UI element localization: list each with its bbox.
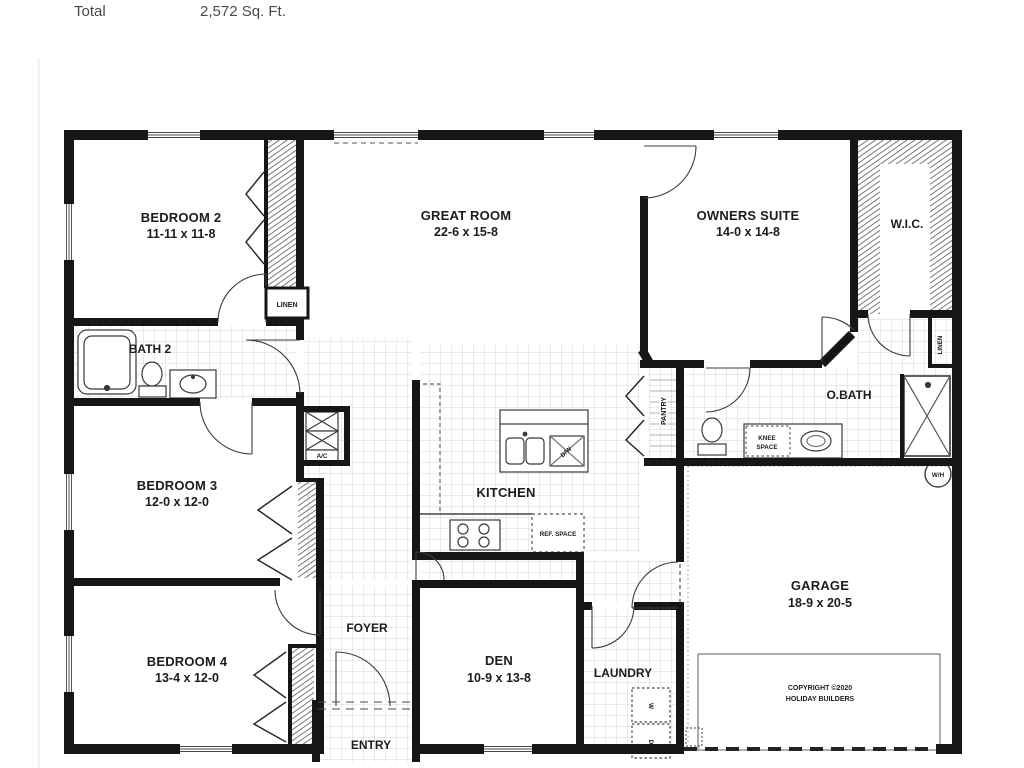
bedroom3-closet-hatch	[298, 482, 316, 578]
room-dims-owners-suite: 14-0 x 14-8	[716, 225, 780, 239]
bathtub	[78, 330, 136, 394]
bifold-bedroom3-closet	[258, 486, 292, 580]
label-copyright-line2: HOLIDAY BUILDERS	[786, 696, 855, 703]
room-label-entry: ENTRY	[351, 738, 391, 752]
label-pantry: PANTRY	[661, 397, 668, 425]
sink-bath2	[170, 370, 216, 398]
range	[450, 520, 500, 550]
room-label-wic: W.I.C.	[891, 217, 924, 231]
room-dims-bedroom4: 13-4 x 12-0	[155, 671, 219, 685]
room-label-bath2: BATH 2	[129, 342, 172, 356]
room-label-foyer: FOYER	[346, 621, 388, 635]
bedroom2-closet-hatch	[268, 140, 296, 288]
label-linen2: LINEN	[937, 335, 944, 354]
room-label-bedroom4: BEDROOM 4	[147, 654, 228, 669]
room-label-great-room: GREAT ROOM	[421, 208, 512, 223]
room-label-bedroom2: BEDROOM 2	[141, 210, 222, 225]
label-wh: W/H	[932, 472, 945, 479]
room-label-laundry: LAUNDRY	[594, 666, 652, 680]
room-dims-bedroom2: 11-11 x 11-8	[147, 227, 216, 241]
page-edge-line	[38, 58, 40, 768]
room-label-owners-suite: OWNERS SUITE	[697, 208, 800, 223]
door-bedroom4	[275, 590, 320, 635]
total-value: 2,572 Sq. Ft.	[200, 3, 286, 20]
kitchen-island	[500, 410, 588, 472]
door-bedroom3	[200, 402, 252, 454]
label-washer: W	[647, 703, 654, 709]
room-label-kitchen: KITCHEN	[476, 485, 535, 500]
shower	[904, 376, 950, 456]
wic-hatch-top	[858, 140, 952, 164]
floor-plan-page: Total 2,572 Sq. Ft. BEDROOM 2 11-11 x 11…	[0, 0, 1024, 768]
room-dims-great-room: 22-6 x 15-8	[434, 225, 498, 239]
room-dims-bedroom3: 12-0 x 12-0	[145, 495, 209, 509]
label-copyright-line1: COPYRIGHT ©2020	[788, 684, 852, 692]
room-label-bedroom3: BEDROOM 3	[137, 478, 218, 493]
wic-hatch-left	[858, 164, 880, 314]
room-label-den: DEN	[485, 653, 513, 668]
room-dims-garage: 18-9 x 20-5	[788, 596, 852, 610]
room-label-obath: O.BATH	[826, 388, 871, 402]
label-linen: LINEN	[277, 302, 298, 309]
total-label: Total	[74, 3, 106, 20]
label-knee-space: SPACE	[756, 444, 777, 451]
bifold-bedroom2-closet	[246, 172, 264, 264]
angled-walls	[642, 334, 852, 364]
floor-plan-drawing: Total 2,572 Sq. Ft. BEDROOM 2 11-11 x 11…	[0, 0, 1024, 768]
room-label-garage: GARAGE	[791, 578, 849, 593]
label-ac: A/C	[317, 453, 328, 460]
bedroom4-closet-hatch	[292, 648, 314, 744]
door-owners-suite	[644, 146, 696, 198]
bifold-bedroom4-closet	[254, 652, 286, 742]
label-dryer: D	[647, 740, 654, 745]
door-bedroom2	[218, 274, 266, 322]
label-knee: KNEE	[758, 435, 776, 442]
wic-hatch-right	[930, 164, 952, 310]
room-dims-den: 10-9 x 13-8	[467, 671, 531, 685]
label-ref-space: REF. SPACE	[540, 531, 577, 538]
